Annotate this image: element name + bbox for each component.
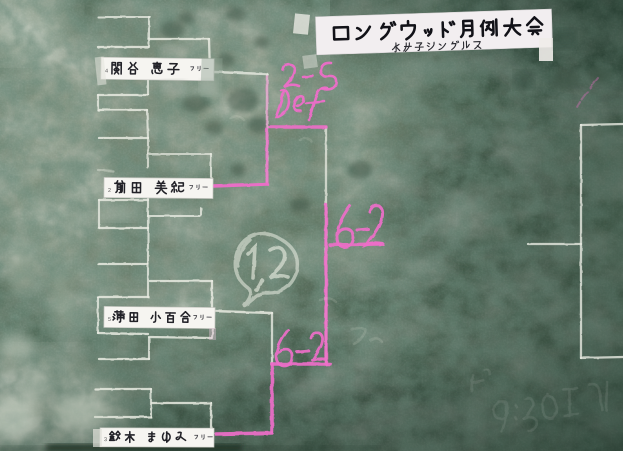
svg-text:3: 3 [104,437,107,443]
svg-text:2: 2 [108,188,111,194]
svg-text:5: 5 [108,317,111,323]
